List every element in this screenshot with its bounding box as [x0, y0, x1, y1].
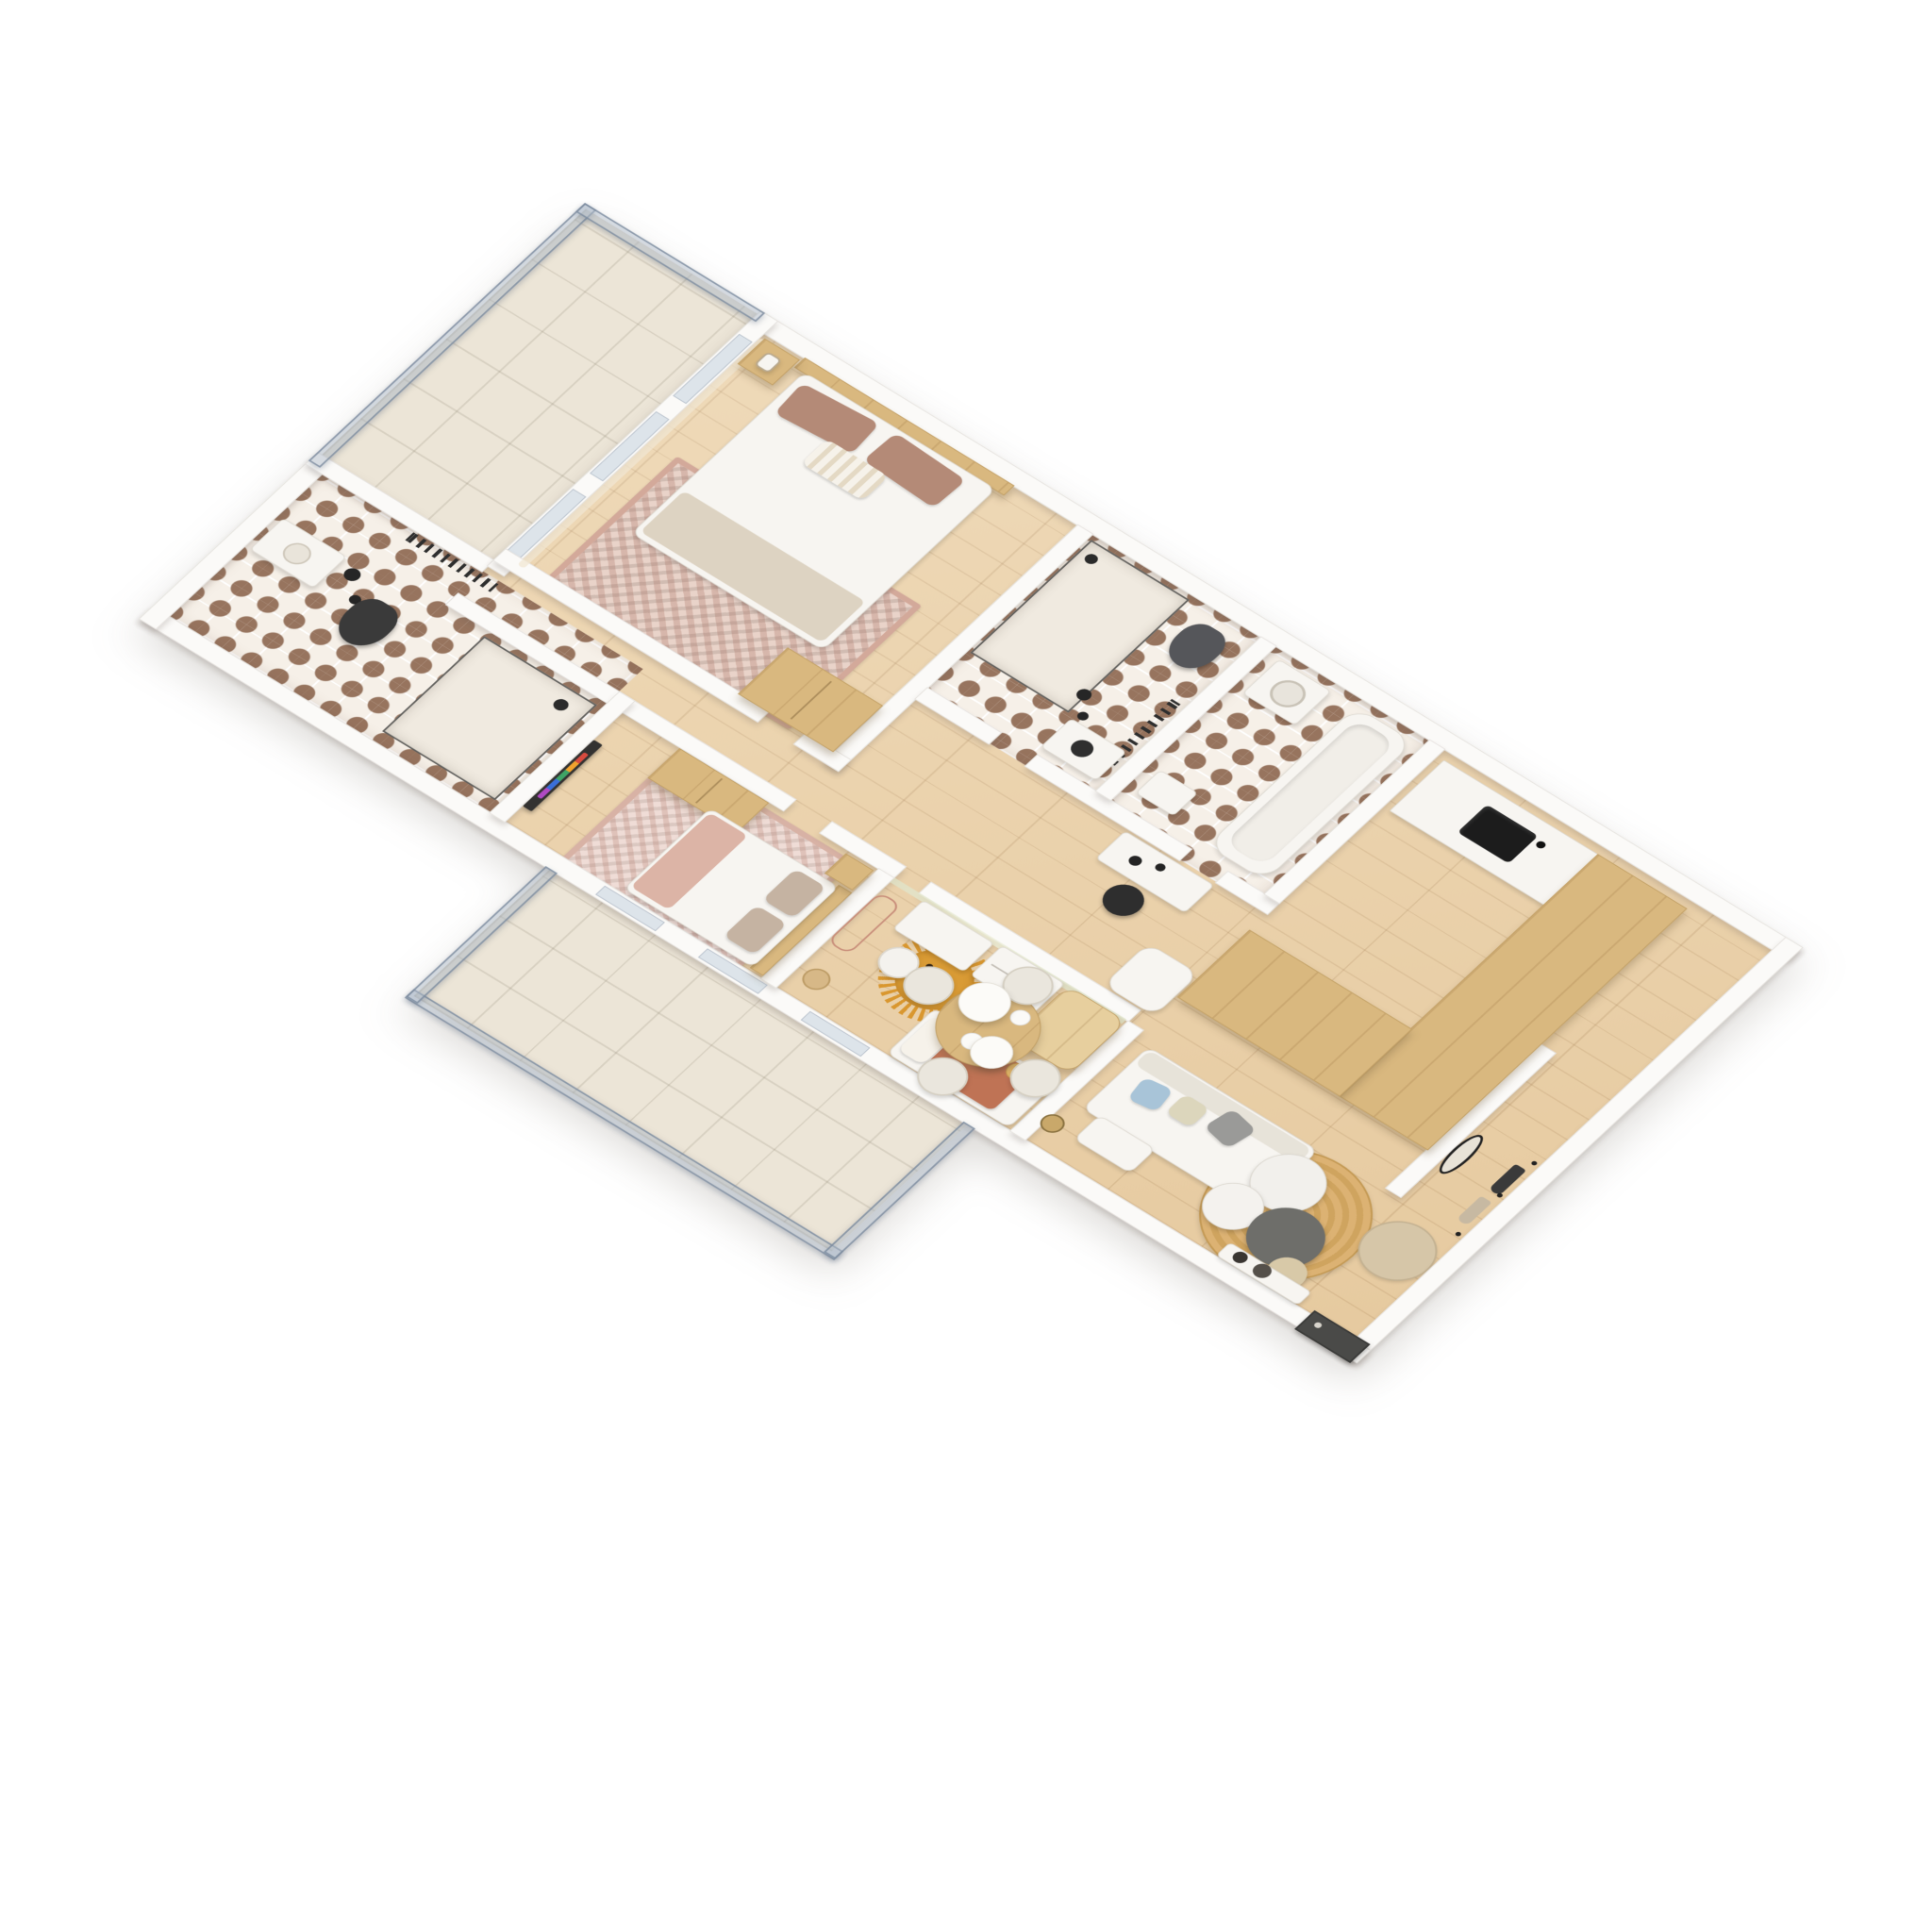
floor-plan-canvas	[0, 0, 1932, 1932]
isometric-apartment-scene	[0, 203, 1817, 1508]
